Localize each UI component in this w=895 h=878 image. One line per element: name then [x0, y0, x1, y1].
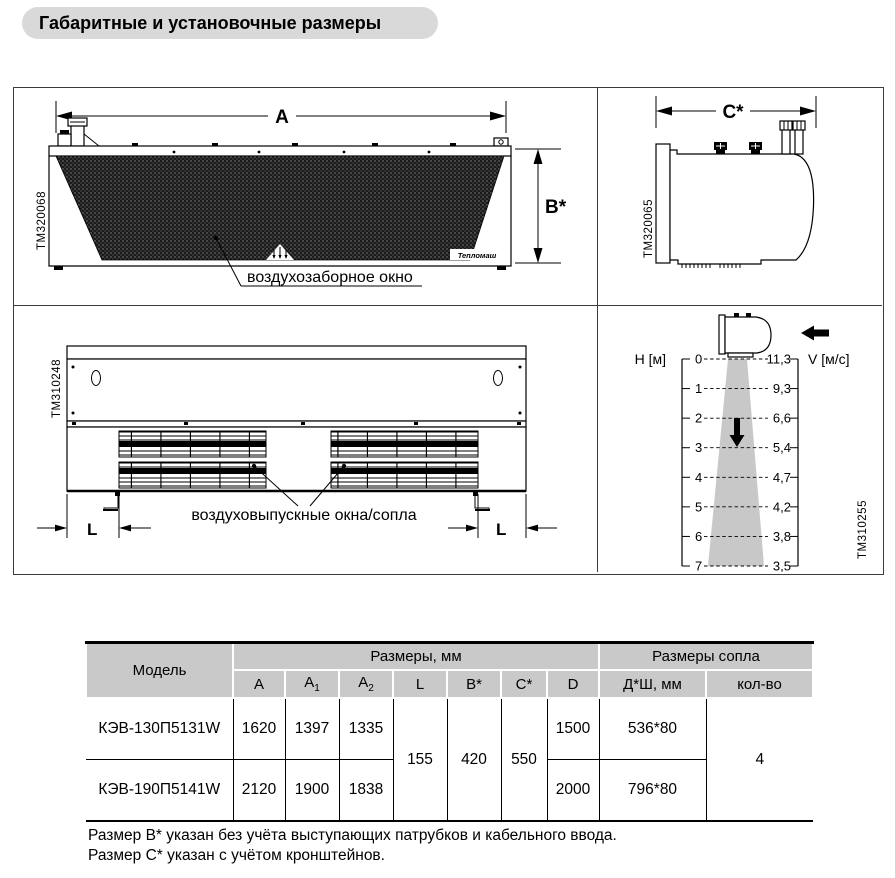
dim-arrow-left-icon [526, 525, 538, 532]
intake-callout-text: воздухозаборное окно [247, 269, 413, 286]
outlet-callout-text: воздуховыпускные окна/сопла [191, 507, 416, 524]
svg-text:0: 0 [695, 352, 702, 367]
value-qty: 4 [706, 698, 813, 821]
footnote-c: Размер C* указан с учётом кронштейнов. [88, 847, 385, 865]
value-a: 2120 [233, 760, 285, 822]
value-a1: 1900 [285, 760, 339, 822]
col-header-a2-text: A [358, 674, 368, 691]
col-header-c: C* [501, 670, 547, 698]
svg-text:4,2: 4,2 [773, 500, 791, 515]
value-l: 155 [393, 698, 447, 821]
col-header-a1-sub: 1 [314, 683, 320, 694]
dim-a-label: A [275, 107, 289, 128]
dim-arrow-left-icon [119, 525, 131, 532]
air-jet-cone [708, 359, 764, 566]
svg-text:6: 6 [695, 529, 702, 544]
model-name: КЭВ-130П5131W [86, 698, 233, 760]
svg-text:4: 4 [695, 470, 702, 485]
dim-arrow-right-icon [490, 112, 506, 121]
svg-text:6,6: 6,6 [773, 411, 791, 426]
dim-l-left-label: L [87, 520, 97, 539]
svg-text:3,5: 3,5 [773, 559, 791, 573]
brand-logo: Тепломаш [450, 249, 504, 260]
svg-text:4,7: 4,7 [773, 470, 791, 485]
drawing-code-chart: TM310255 [857, 500, 869, 559]
velocity-chart: H [м] V [м/с] 011,319,326,635,444,754,26… [598, 306, 882, 572]
svg-text:5: 5 [695, 500, 702, 515]
dim-arrow-right-icon [800, 107, 816, 116]
drawing-code-front: TM320068 [36, 191, 48, 250]
drawing-code-bottom: TM310248 [51, 359, 63, 418]
side-view-drawing: C* [598, 88, 882, 305]
col-header-nozzle-size: Д*Ш, мм [599, 670, 706, 698]
model-name: КЭВ-190П5141W [86, 760, 233, 822]
col-header-d: D [547, 670, 599, 698]
col-header-l: L [393, 670, 447, 698]
dimension-l-left: L [37, 494, 151, 539]
col-group-dimensions: Размеры, мм [233, 643, 599, 671]
value-d: 2000 [547, 760, 599, 822]
unit-side-profile [670, 150, 814, 264]
h-axis-label: H [м] [635, 351, 666, 367]
side-view-cell: C* [598, 88, 882, 306]
svg-text:2: 2 [695, 411, 702, 426]
svg-text:9,3: 9,3 [773, 381, 791, 396]
svg-text:11,3: 11,3 [767, 352, 791, 367]
velocity-chart-cell: H [м] V [м/с] 011,319,326,635,444,754,26… [598, 306, 882, 572]
spec-table: Модель Размеры, мм Размеры сопла A A1 A2… [85, 641, 814, 822]
dim-arrow-up-icon [534, 149, 543, 164]
value-d: 1500 [547, 698, 599, 760]
mounting-plate [656, 144, 670, 263]
value-nozzle-size: 536*80 [599, 698, 706, 760]
intake-arrow-icon [801, 326, 829, 341]
svg-text:1: 1 [695, 381, 702, 396]
dim-arrow-left-icon [656, 107, 672, 116]
dim-b-label: B* [545, 197, 567, 218]
dim-c-label: C* [723, 102, 745, 123]
value-c: 550 [501, 698, 547, 821]
water-pipes [780, 121, 805, 154]
col-group-nozzle: Размеры сопла [599, 643, 813, 671]
dimension-l-right: L [448, 494, 557, 539]
dimension-a: A [56, 101, 506, 133]
bottom-view-drawing: L L воздуховыпускные окна/сопла [14, 306, 597, 572]
pipe-fitting [58, 118, 99, 146]
front-view-cell: A [14, 88, 598, 306]
col-header-b: B* [447, 670, 501, 698]
col-header-a1: A1 [285, 670, 339, 698]
value-a2: 1838 [339, 760, 393, 822]
dim-arrow-right-icon [55, 525, 67, 532]
col-header-a2-sub: 2 [368, 683, 374, 694]
svg-text:3: 3 [695, 441, 702, 456]
valve-nuts [714, 142, 762, 154]
svg-text:7: 7 [695, 559, 702, 573]
value-a: 1620 [233, 698, 285, 760]
unit-icon [719, 313, 771, 357]
value-a1: 1397 [285, 698, 339, 760]
drawings-panel: A [13, 87, 884, 575]
v-axis-label: V [м/с] [808, 351, 850, 367]
value-b: 420 [447, 698, 501, 821]
col-header-a: A [233, 670, 285, 698]
svg-text:5,4: 5,4 [773, 441, 791, 456]
table-row: КЭВ-130П5131W 1620 1397 1335 155 420 550… [86, 698, 813, 760]
value-a2: 1335 [339, 698, 393, 760]
dim-l-right-label: L [496, 520, 506, 539]
col-header-a2: A2 [339, 670, 393, 698]
col-header-a1-text: A [304, 674, 314, 691]
dim-arrow-down-icon [534, 248, 543, 263]
dim-arrow-right-icon [466, 525, 478, 532]
dimension-b: B* [515, 149, 567, 263]
svg-text:3,8: 3,8 [773, 529, 791, 544]
col-header-model: Модель [86, 643, 233, 699]
bottom-view-cell: L L воздуховыпускные окна/сопла [14, 306, 598, 572]
value-nozzle-size: 796*80 [599, 760, 706, 822]
col-header-qty: кол-во [706, 670, 813, 698]
page-title: Габаритные и установочные размеры [22, 7, 438, 39]
brand-logo-text: Тепломаш [458, 251, 497, 260]
footnote-b: Размер B* указан без учёта выступающих п… [88, 827, 617, 845]
drawing-code-side: TM320065 [643, 199, 655, 258]
front-view-drawing: A [14, 88, 597, 305]
hanger-bracket [494, 138, 508, 146]
